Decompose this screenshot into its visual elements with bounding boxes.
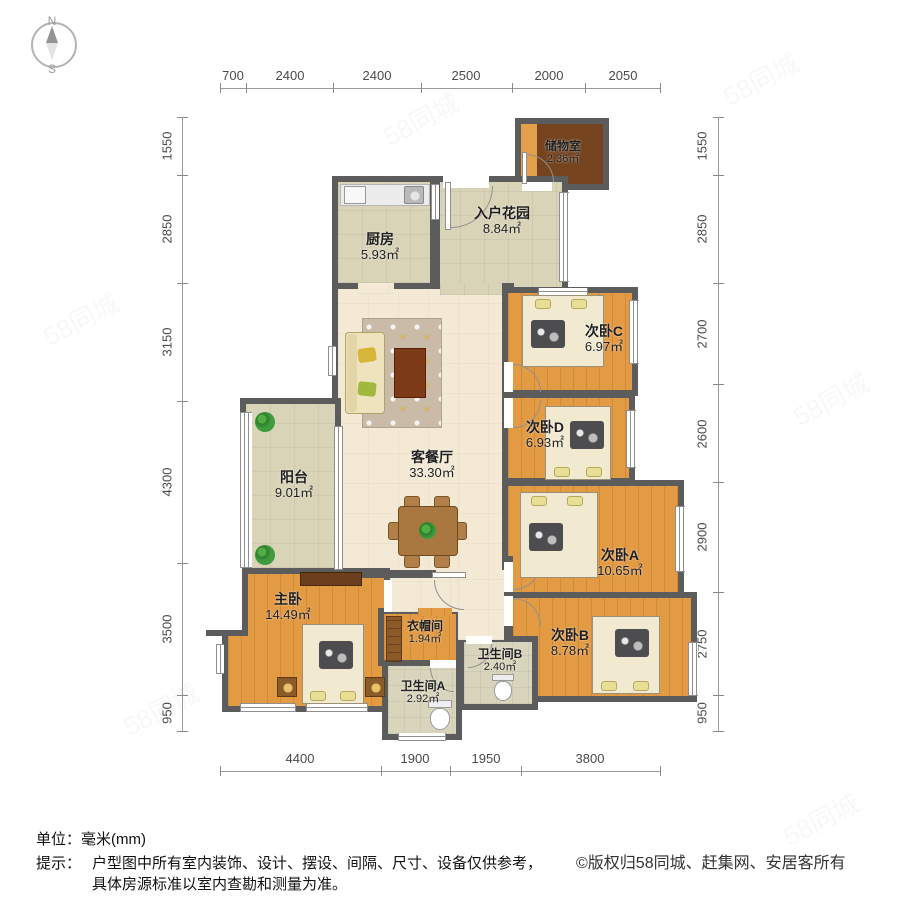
floor-plan: 700 2400 2400 2500 2000 2050 1550 2850 3… xyxy=(0,0,900,900)
toilet-tank xyxy=(492,674,514,681)
dim-tick xyxy=(381,766,382,776)
dim-tick xyxy=(713,592,724,593)
dim-tick xyxy=(450,766,451,776)
dim-label: 3500 xyxy=(160,615,175,644)
hall-door-leaf xyxy=(432,572,466,578)
window-balcony-rail xyxy=(240,412,252,568)
dim-tick xyxy=(660,83,661,93)
window xyxy=(626,410,636,468)
room-label-living-dining: 客餐厅33.30㎡ xyxy=(409,450,455,480)
room-label-bath-b: 卫生间B2.40㎡ xyxy=(478,648,523,674)
dim-label: 3800 xyxy=(576,751,605,766)
bed xyxy=(302,624,364,704)
bedroom-a-door-gap xyxy=(504,562,513,592)
sofa-back xyxy=(347,334,357,412)
dim-tick xyxy=(512,83,513,93)
dim-tick xyxy=(220,766,221,776)
nightstand xyxy=(365,677,385,697)
toilet xyxy=(494,681,512,701)
plant xyxy=(255,412,275,432)
copyright-note: ©版权归58同城、赶集网、安居客所有 xyxy=(576,849,846,873)
room-label-entry-garden: 入户花园8.84㎡ xyxy=(474,206,530,236)
dim-line-top xyxy=(220,88,660,89)
dim-label: 700 xyxy=(222,68,244,83)
sofa-pillow xyxy=(357,381,376,397)
bedroom-d-door-gap xyxy=(504,398,513,428)
dim-tick xyxy=(177,283,188,284)
window xyxy=(559,192,569,282)
dim-label: 1550 xyxy=(695,132,710,161)
dim-label: 3150 xyxy=(160,328,175,357)
dim-label: 2900 xyxy=(695,523,710,552)
dim-line-bottom xyxy=(220,771,660,772)
window xyxy=(240,703,296,712)
coffee-table xyxy=(394,348,426,398)
dim-label: 2000 xyxy=(535,68,564,83)
kitchen-sink xyxy=(404,186,424,204)
hallway xyxy=(458,570,506,640)
dim-tick xyxy=(333,83,334,93)
dim-label: 1950 xyxy=(472,751,501,766)
dim-label: 4300 xyxy=(160,468,175,497)
plant xyxy=(419,522,436,539)
room-label-bedroom-d: 次卧D6.93㎡ xyxy=(526,420,564,450)
bath-a-door-gap xyxy=(430,660,456,668)
window xyxy=(675,506,685,572)
room-label-bedroom-b: 次卧B8.78㎡ xyxy=(551,628,589,658)
dim-tick xyxy=(585,83,586,93)
dim-tick xyxy=(421,83,422,93)
bedroom-b-door-gap xyxy=(504,596,513,626)
dim-label: 2850 xyxy=(695,215,710,244)
master-door-gap xyxy=(384,580,392,612)
dim-label: 4400 xyxy=(286,751,315,766)
dim-label: 1900 xyxy=(401,751,430,766)
dim-tick xyxy=(177,695,188,696)
tip-line-2: 具体房源标准以室内查勘和测量为准。 xyxy=(92,873,347,894)
wardrobe xyxy=(386,616,402,662)
window xyxy=(629,300,639,364)
dim-tick xyxy=(713,384,724,385)
dim-label: 950 xyxy=(160,702,175,724)
window-balcony-slider xyxy=(334,426,343,570)
tip-line-1: 户型图中所有室内装饰、设计、摆设、间隔、尺寸、设备仅供参考， xyxy=(92,852,542,873)
bath-b-door-gap xyxy=(466,636,492,644)
window xyxy=(688,642,698,696)
room-label-bedroom-a: 次卧A10.65㎡ xyxy=(597,548,643,578)
room-label-bath-a: 卫生间A2.92㎡ xyxy=(401,680,446,706)
dim-tick xyxy=(220,83,221,93)
opening xyxy=(358,283,394,294)
wall-notch xyxy=(206,556,248,636)
window xyxy=(398,733,446,741)
dim-label: 950 xyxy=(695,702,710,724)
plant xyxy=(255,545,275,565)
dim-label: 2700 xyxy=(695,320,710,349)
room-label-kitchen: 厨房5.93㎡ xyxy=(361,232,399,262)
window xyxy=(306,703,368,712)
dim-tick xyxy=(177,563,188,564)
dim-tick xyxy=(713,695,724,696)
toilet xyxy=(430,708,450,730)
tip-label: 提示： xyxy=(36,852,81,873)
dim-line-left xyxy=(182,117,183,731)
dim-label: 2400 xyxy=(276,68,305,83)
window xyxy=(431,184,439,220)
opening xyxy=(418,608,452,616)
window xyxy=(328,346,336,376)
dim-label: 2050 xyxy=(609,68,638,83)
dim-tick xyxy=(177,401,188,402)
tv-cabinet xyxy=(300,572,362,586)
nightstand xyxy=(277,677,297,697)
dim-tick xyxy=(713,731,724,732)
dim-label: 1550 xyxy=(160,132,175,161)
room-label-storage: 储物室2.36㎡ xyxy=(545,140,581,166)
dim-label: 2850 xyxy=(160,215,175,244)
unit-note: 单位：毫米(mm) xyxy=(36,828,146,849)
dim-tick xyxy=(246,83,247,93)
dim-tick xyxy=(713,117,724,118)
room-label-closet: 衣帽间1.94㎡ xyxy=(407,620,443,646)
dim-tick xyxy=(713,482,724,483)
dim-tick xyxy=(177,731,188,732)
bed xyxy=(520,492,598,578)
room-label-balcony: 阳台9.01㎡ xyxy=(275,470,313,500)
fridge xyxy=(344,186,366,204)
dim-label: 2500 xyxy=(452,68,481,83)
bedroom-c-door-gap xyxy=(504,362,513,392)
window xyxy=(216,644,224,674)
dim-tick xyxy=(713,283,724,284)
dim-label: 2400 xyxy=(363,68,392,83)
room-label-bedroom-c: 次卧C6.97㎡ xyxy=(585,324,623,354)
dining-chair xyxy=(404,555,420,568)
floorplan-page: { "compass": { "north": "N", "south": "S… xyxy=(0,0,900,900)
dim-line-right xyxy=(718,117,719,731)
dining-chair xyxy=(434,555,450,568)
opening xyxy=(440,283,502,295)
bed xyxy=(592,616,660,694)
dim-label: 2600 xyxy=(695,420,710,449)
dim-tick xyxy=(177,117,188,118)
dim-tick xyxy=(177,175,188,176)
room-label-master-bedroom: 主卧14.49㎡ xyxy=(265,592,311,622)
dim-tick xyxy=(713,175,724,176)
dim-tick xyxy=(660,766,661,776)
sofa-pillow xyxy=(357,347,377,363)
dim-tick xyxy=(521,766,522,776)
